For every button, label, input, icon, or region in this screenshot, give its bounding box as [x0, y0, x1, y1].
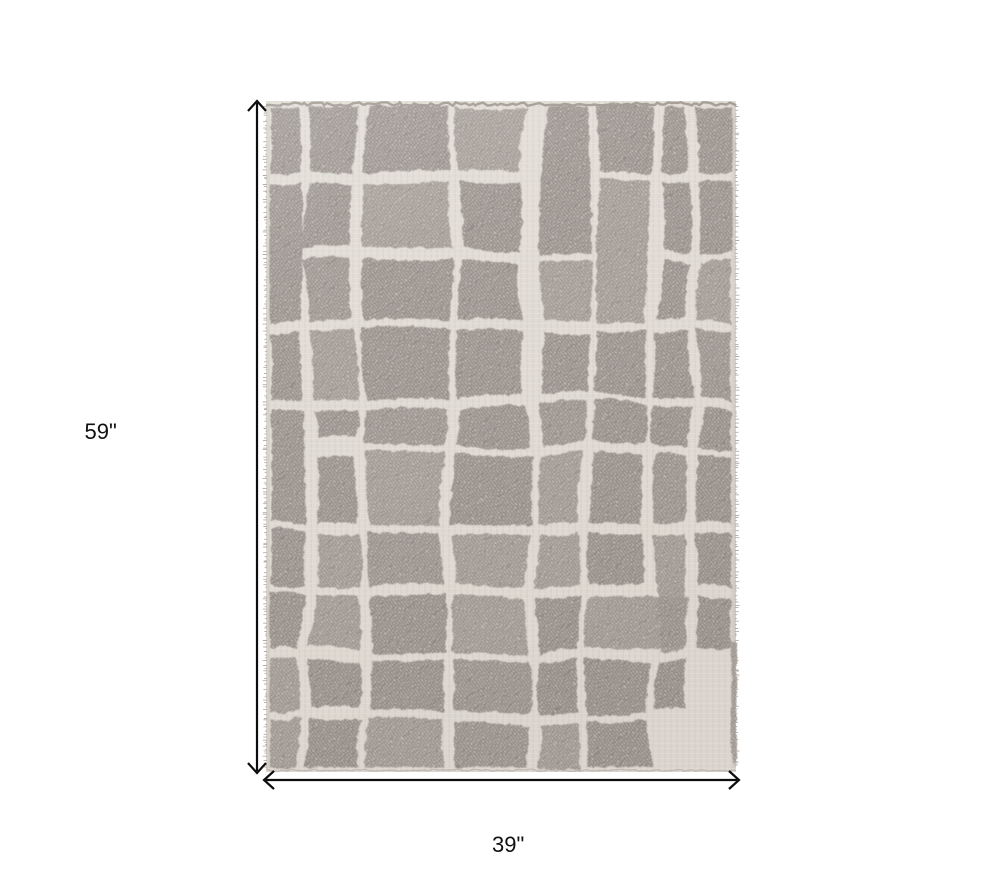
- svg-text:59": 59": [85, 419, 117, 444]
- svg-text:39": 39": [492, 832, 524, 857]
